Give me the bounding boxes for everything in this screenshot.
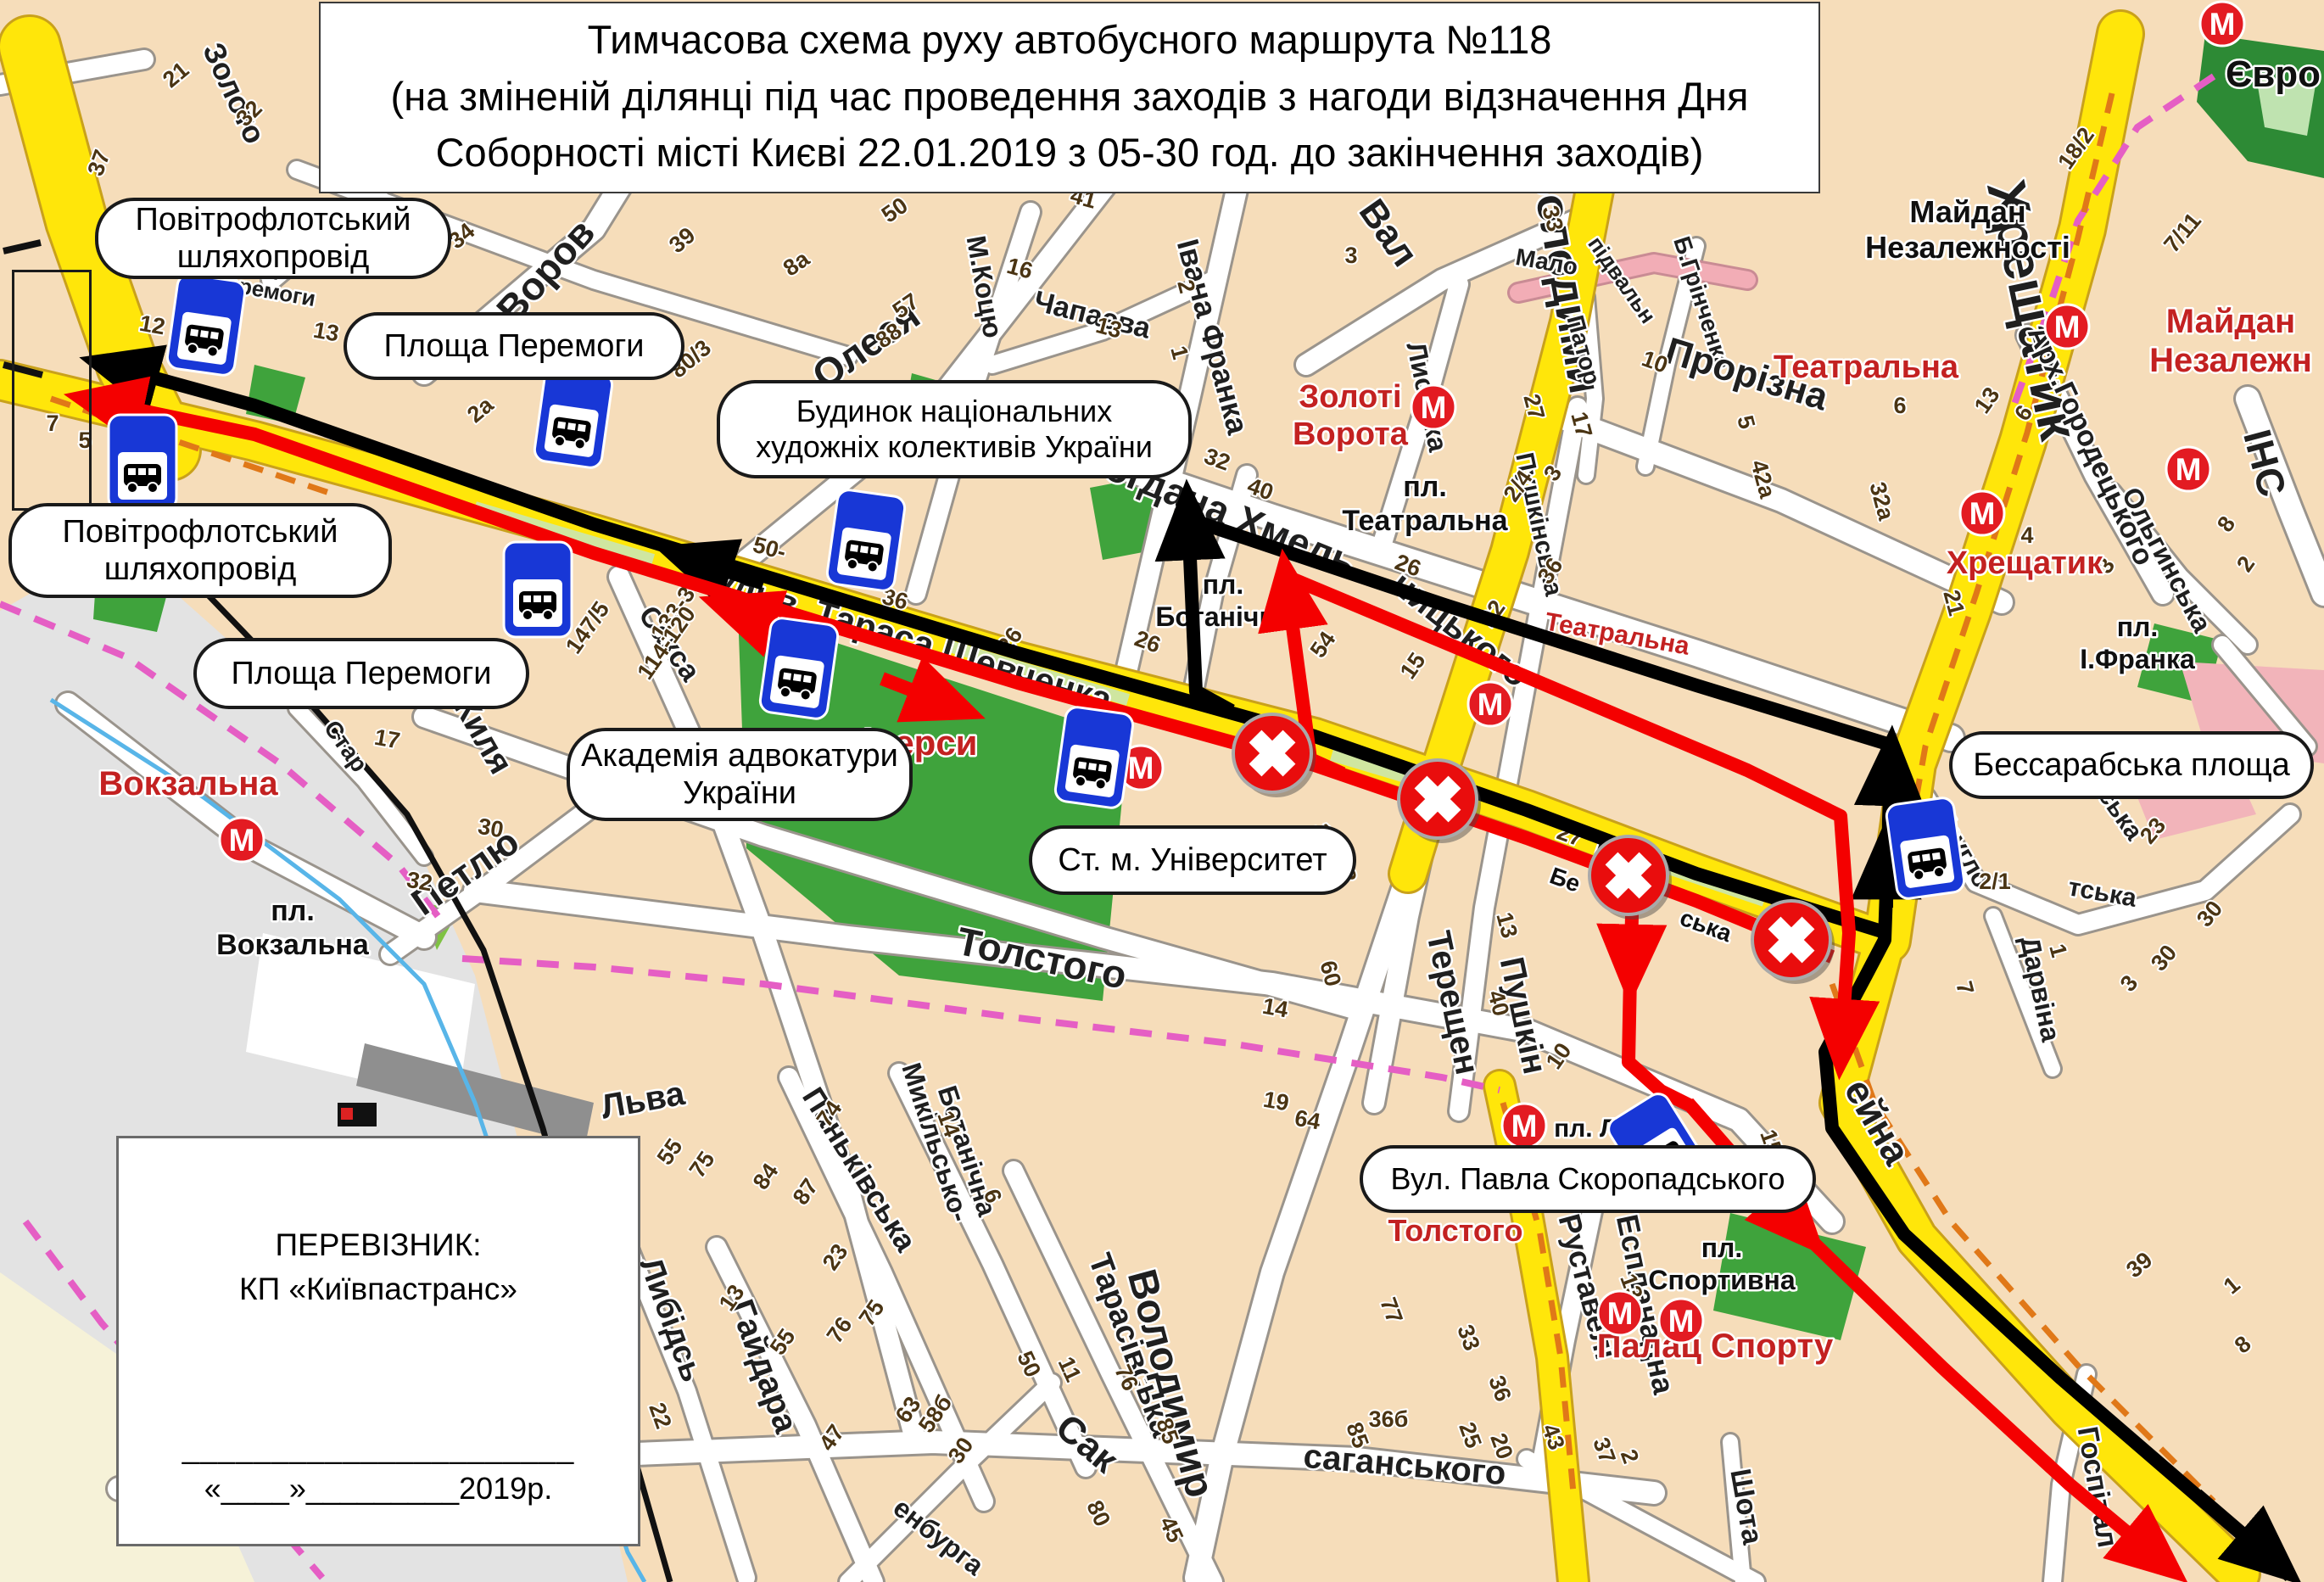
- bus-glyph-window: [793, 674, 802, 681]
- bus-glyph-wheel: [187, 343, 198, 355]
- street: [1556, 416, 2002, 602]
- street-label: Гайдара: [723, 1294, 805, 1438]
- house-number: 2: [2232, 551, 2260, 577]
- callout-povitroflotskyi-overpass-1: Повітрофлотський шляхопровід: [95, 198, 451, 279]
- bus-glyph-window: [567, 422, 576, 430]
- poi-label: Театральна: [1342, 505, 1508, 537]
- poi-label: Ботанічна: [1155, 601, 1290, 632]
- house-number: 13: [311, 317, 341, 347]
- title-line: Соборності місті Києві 22.01.2019 з 05-3…: [321, 125, 1818, 182]
- house-number: 7/11: [2159, 208, 2206, 257]
- metro-icon: М: [1659, 1299, 1703, 1343]
- closed-stop-x: [1612, 858, 1645, 892]
- house-number: 25: [1454, 1419, 1486, 1451]
- callout-vul-skoropadskoho: Вул. Павла Скоропадського: [1360, 1145, 1816, 1213]
- house-number: 7: [1951, 979, 1979, 998]
- metro-letter: М: [2054, 310, 2081, 344]
- bus-glyph-window: [870, 547, 879, 555]
- railway-station-mark: [341, 1108, 353, 1120]
- bus-glyph-window: [544, 595, 551, 602]
- poi-label: Палац Спорту: [1597, 1328, 1834, 1365]
- house-number: 30: [476, 813, 506, 843]
- bus-glyph-window: [210, 332, 219, 339]
- poi-label: Бе: [1546, 862, 1584, 897]
- poi-label: Хрещатик: [1947, 545, 2103, 581]
- metro-letter: М: [1511, 1109, 1538, 1143]
- house-number: 36б: [1369, 1406, 1409, 1432]
- metro-letter: М: [1421, 390, 1447, 425]
- metro-letter: М: [2176, 452, 2202, 487]
- callout-line: Ст. м. Університет: [1058, 841, 1327, 879]
- bus-glyph-window: [523, 595, 531, 602]
- tram-dashed-line: [1832, 984, 2214, 1501]
- bus-stop-icon: [759, 617, 840, 720]
- house-number: 22: [644, 1400, 676, 1432]
- bus-glyph-wheel: [522, 610, 533, 620]
- house-number: 50: [877, 193, 913, 228]
- bus-glyph-window: [138, 468, 146, 475]
- metro-icon: М: [2200, 2, 2244, 46]
- metro-letter: М: [1607, 1296, 1634, 1331]
- bus-glyph-wheel: [1075, 775, 1087, 787]
- house-number: 13: [1491, 909, 1522, 941]
- poi-label: Майдан: [2166, 303, 2295, 340]
- house-number: 39: [2121, 1247, 2157, 1283]
- callout-povitroflotskyi-overpass-2: Повітрофлотський шляхопровід: [8, 503, 392, 598]
- house-number: 3: [2115, 970, 2143, 997]
- house-number: 15: [1395, 648, 1431, 684]
- title-box: Тимчасова схема руху автобусного маршрут…: [319, 2, 1820, 193]
- house-number: 87: [788, 1174, 824, 1210]
- metro-icon: М: [1411, 385, 1455, 429]
- carrier-date-line: «____»_________2019р.: [119, 1471, 638, 1507]
- callout-bessarabska-ploshcha: Бессарабська площа: [1949, 731, 2314, 799]
- poi-label: пл.: [1403, 471, 1447, 503]
- house-number: 76: [822, 1312, 858, 1348]
- street-label: Вал: [1351, 192, 1426, 274]
- house-number: 1: [2044, 942, 2072, 960]
- poi-label: Театральна: [1774, 349, 1959, 385]
- bus-glyph-window: [190, 329, 198, 337]
- carrier-box: ПЕРЕВІЗНИК: КП «Київпастранс» __________…: [116, 1136, 640, 1546]
- bus-glyph-window: [200, 330, 209, 338]
- callout-line: шляхопровід: [177, 238, 370, 276]
- title-line: (на зміненій ділянці під час проведення …: [321, 69, 1818, 126]
- metro-letter: М: [1969, 496, 1996, 531]
- bus-stop-icon: [826, 489, 907, 592]
- bus-stop-icon: [1885, 797, 1966, 900]
- bus-glyph-wheel: [543, 610, 553, 620]
- street-label: тська: [2066, 873, 2139, 913]
- bus-stop-icon: [534, 366, 614, 469]
- poi-label: пл.: [2117, 612, 2159, 642]
- carrier-name: КП «Київпастранс»: [119, 1272, 638, 1307]
- map-page: ЗолотоВоровОлесяМ.КоцюЧапаєваІвана Франк…: [0, 0, 2324, 1582]
- bus-glyph-window: [557, 422, 566, 429]
- bus-glyph-window: [1088, 763, 1097, 770]
- bus-glyph-wheel: [1933, 866, 1945, 878]
- bus-glyph-window: [1932, 852, 1941, 860]
- house-number: 4: [2020, 523, 2033, 548]
- metro-icon: М: [1598, 1291, 1642, 1335]
- closed-stop-x: [1421, 782, 1455, 816]
- callout-line: Вул. Павла Скоропадського: [1390, 1161, 1785, 1197]
- poi-label: пл.: [271, 895, 315, 927]
- house-number: 2а: [462, 391, 499, 428]
- street-label: ІНС: [2235, 425, 2295, 501]
- house-number: 2: [1616, 1446, 1644, 1467]
- house-number: 30: [2146, 940, 2182, 975]
- bus-stop-icon: [1054, 706, 1135, 809]
- house-number: 1: [2219, 1272, 2245, 1300]
- callout-line: Повітрофлотський: [63, 513, 338, 551]
- house-number: 77: [1375, 1294, 1407, 1327]
- metro-icon: М: [1502, 1104, 1546, 1148]
- bus-glyph-wheel: [574, 439, 586, 450]
- poi-label: І.Франка: [2080, 644, 2195, 674]
- house-number: 23: [818, 1239, 853, 1275]
- metro-icon: М: [2045, 305, 2089, 349]
- poi-label: Незалежності: [1865, 230, 2070, 265]
- house-number: 6: [1893, 393, 1906, 418]
- street-label: Льва: [598, 1075, 688, 1126]
- bus-glyph-window: [803, 675, 812, 683]
- metro-letter: М: [2209, 7, 2236, 42]
- callout-line: України: [683, 774, 796, 812]
- callout-line: Будинок національних: [796, 394, 1113, 429]
- bus-glyph-window: [1078, 762, 1087, 769]
- bus-glyph-window: [850, 545, 858, 552]
- bus-glyph-window: [534, 595, 541, 602]
- house-number: 3: [1344, 243, 1357, 268]
- bus-glyph-wheel: [554, 435, 566, 447]
- bus-glyph-wheel: [779, 686, 791, 698]
- callout-line: шляхопровід: [104, 551, 297, 588]
- bus-glyph-window: [860, 545, 869, 553]
- bus-stop-icon: [504, 542, 572, 637]
- poi-label: Майдан: [1909, 194, 2025, 229]
- title-line: Тимчасова схема руху автобусного маршрут…: [321, 12, 1818, 69]
- bus-glyph-wheel: [207, 346, 219, 358]
- house-number: 33: [1452, 1322, 1484, 1354]
- bus-glyph-wheel: [846, 558, 858, 570]
- closed-stop-x: [1255, 736, 1289, 770]
- poi-label: Толстого: [1388, 1213, 1523, 1248]
- house-number: 55: [652, 1134, 688, 1170]
- bus-stop-icon: [109, 415, 176, 510]
- bus-glyph-wheel: [127, 483, 137, 493]
- bus-glyph-wheel: [867, 562, 879, 573]
- metro-letter: М: [1478, 687, 1504, 722]
- house-number: 36: [1483, 1372, 1516, 1405]
- carrier-label: ПЕРЕВІЗНИК:: [119, 1227, 638, 1263]
- metro-icon: М: [1468, 682, 1512, 726]
- carrier-signature-line: ______________________: [119, 1430, 638, 1466]
- callout-line: художніх колективів України: [756, 429, 1153, 465]
- poi-label: Незалежн: [2149, 342, 2312, 379]
- callout-line: Академія адвокатури: [581, 737, 898, 774]
- callout-line: Площа Перемоги: [231, 655, 491, 692]
- metro-letter: М: [229, 823, 255, 858]
- bus-glyph-wheel: [800, 690, 812, 702]
- house-number: 13: [1969, 383, 2005, 418]
- bus-glyph-window: [148, 468, 156, 475]
- poi-label: Євро: [2226, 53, 2321, 95]
- bus-glyph-window: [783, 673, 791, 680]
- poi-label: пл.: [1701, 1233, 1743, 1263]
- poi-label: пл.: [1203, 569, 1244, 600]
- bus-glyph-window: [128, 468, 136, 475]
- street-label: Либідсь: [633, 1253, 711, 1386]
- poi-label: Золоті: [1299, 379, 1401, 415]
- house-number: 8: [2230, 1331, 2256, 1359]
- callout-akademiya-advokatury: Академія адвокатури України: [567, 728, 913, 821]
- metro-icon: М: [1960, 491, 2004, 535]
- callout-ploshcha-peremohy-1: Площа Перемоги: [344, 312, 684, 380]
- house-number: 5: [1732, 413, 1760, 432]
- callout-ploshcha-peremohy-2: Площа Перемоги: [193, 638, 529, 709]
- house-number: 75: [684, 1147, 720, 1182]
- house-number: 19: [1261, 1087, 1291, 1116]
- poi-label: Спортивна: [1648, 1265, 1795, 1295]
- house-number: 84: [748, 1159, 784, 1194]
- callout-line: Бессарабська площа: [1973, 746, 2289, 784]
- house-number: 32: [1201, 443, 1233, 475]
- house-number: 32а: [1864, 479, 1899, 523]
- house-number: 54: [1305, 627, 1341, 662]
- bus-glyph-wheel: [148, 483, 158, 493]
- metro-icon: М: [220, 818, 264, 862]
- metro-letter: М: [1668, 1304, 1695, 1339]
- bus-glyph-window: [1098, 764, 1107, 772]
- poi-label: Вокзальна: [98, 765, 278, 802]
- bus-glyph-wheel: [1913, 869, 1925, 881]
- house-number: 17: [372, 724, 402, 754]
- metro-letter: М: [1128, 751, 1154, 785]
- house-number: 8: [2212, 511, 2240, 537]
- house-number: 14: [1260, 993, 1290, 1023]
- poi-label: Вокзальна: [216, 929, 370, 961]
- house-number: 64: [1293, 1105, 1322, 1135]
- bus-glyph-wheel: [1095, 779, 1107, 791]
- callout-line: Повітрофлотський: [136, 201, 411, 238]
- bus-glyph-window: [1912, 855, 1920, 863]
- street-label: Золото: [196, 37, 273, 149]
- house-number: 32: [405, 867, 434, 897]
- callout-line: Площа Перемоги: [383, 327, 644, 365]
- bus-glyph-window: [1922, 853, 1930, 861]
- bus-glyph-window: [578, 424, 586, 432]
- callout-leader-box: [12, 270, 92, 511]
- house-number: 8а: [779, 245, 815, 281]
- house-number: 39: [664, 222, 700, 258]
- house-number: 2/1: [1979, 869, 2011, 894]
- callout-st-m-universytet: Ст. м. Університет: [1029, 825, 1356, 895]
- bus-stop-icon: [166, 273, 247, 377]
- callout-budynok-kolektyviv: Будинок національних художніх колективів…: [717, 380, 1192, 478]
- house-number: 21: [158, 57, 193, 92]
- closed-stop-x: [1774, 923, 1808, 957]
- house-number: 37: [1588, 1434, 1620, 1467]
- metro-icon: М: [2166, 447, 2210, 491]
- house-number: 80: [1081, 1496, 1115, 1530]
- poi-label: Ворота: [1293, 416, 1409, 452]
- house-number: 12: [137, 310, 167, 340]
- bridge-mark: [3, 243, 41, 251]
